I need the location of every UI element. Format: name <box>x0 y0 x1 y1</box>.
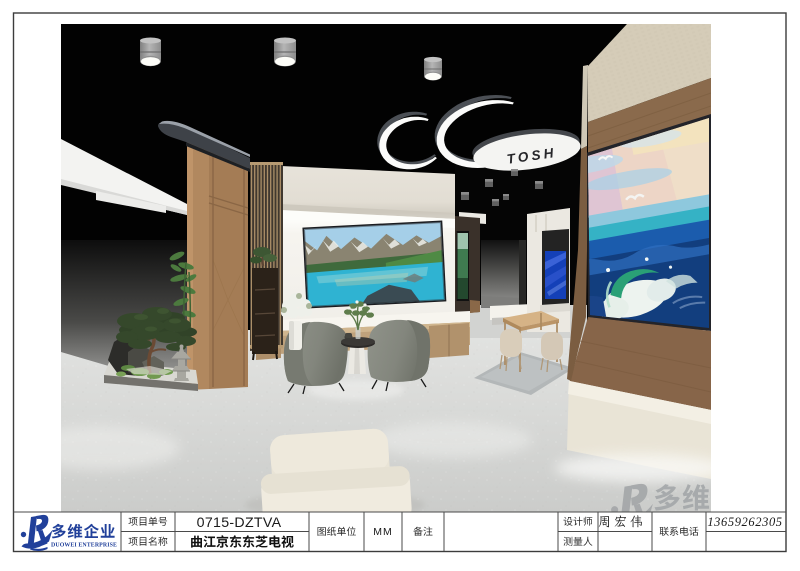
svg-text:DUOWEI ENTERPRISE: DUOWEI ENTERPRISE <box>51 543 117 549</box>
svg-text:13659262305: 13659262305 <box>707 515 782 529</box>
svg-text:MM: MM <box>373 526 393 538</box>
svg-text:0715-DZTVA: 0715-DZTVA <box>197 515 282 531</box>
